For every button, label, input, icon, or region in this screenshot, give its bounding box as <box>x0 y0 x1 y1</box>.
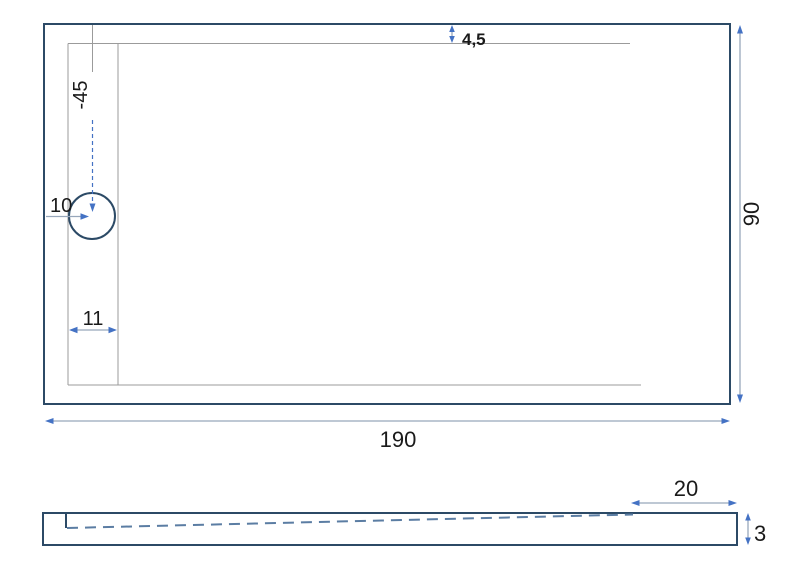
arrow-up-icon <box>745 513 751 521</box>
dim-drain-diameter: 10 <box>46 195 89 220</box>
dim-width-label: 90 <box>739 202 764 226</box>
dim-rim-offset-label: 4,5 <box>462 30 486 49</box>
arrow-down-icon <box>745 538 751 546</box>
top-view: 4,5 -45 10 11 90 <box>44 24 764 452</box>
dim-flat-section-label: 20 <box>674 476 698 501</box>
tray-outline-top <box>44 24 730 404</box>
floor-slope-dashed-line <box>67 515 633 529</box>
tray-outline-side <box>43 513 737 545</box>
drawing-canvas: 4,5 -45 10 11 90 <box>0 0 800 579</box>
dim-length: 190 <box>45 418 730 452</box>
dim-drain-margin: 11 <box>69 308 117 333</box>
dim-drain-margin-label: 11 <box>83 308 104 330</box>
dim-rim-offset: 4,5 <box>449 25 485 49</box>
arrow-up-icon <box>449 25 455 32</box>
side-view: 20 3 <box>43 476 766 546</box>
arrow-left-icon <box>69 327 78 333</box>
dim-drain-depth: -45 <box>70 25 96 212</box>
arrow-right-icon <box>109 327 118 333</box>
arrow-left-icon <box>45 418 54 424</box>
arrow-up-icon <box>737 25 743 34</box>
arrow-right-icon <box>722 418 731 424</box>
dim-width: 90 <box>737 25 764 403</box>
arrow-right-icon <box>729 500 738 506</box>
dim-length-label: 190 <box>380 427 417 452</box>
dim-drain-depth-label: -45 <box>70 81 92 110</box>
arrow-down-icon <box>90 204 96 213</box>
arrow-down-icon <box>737 395 743 404</box>
arrow-right-icon <box>81 213 90 219</box>
dim-thickness: 3 <box>745 513 766 546</box>
arrow-down-icon <box>449 36 455 43</box>
technical-drawing: 4,5 -45 10 11 90 <box>0 0 800 579</box>
arrow-left-icon <box>631 500 640 506</box>
dim-flat-section: 20 <box>631 476 737 506</box>
dim-drain-diameter-label: 10 <box>50 195 72 217</box>
dim-thickness-label: 3 <box>754 521 766 546</box>
